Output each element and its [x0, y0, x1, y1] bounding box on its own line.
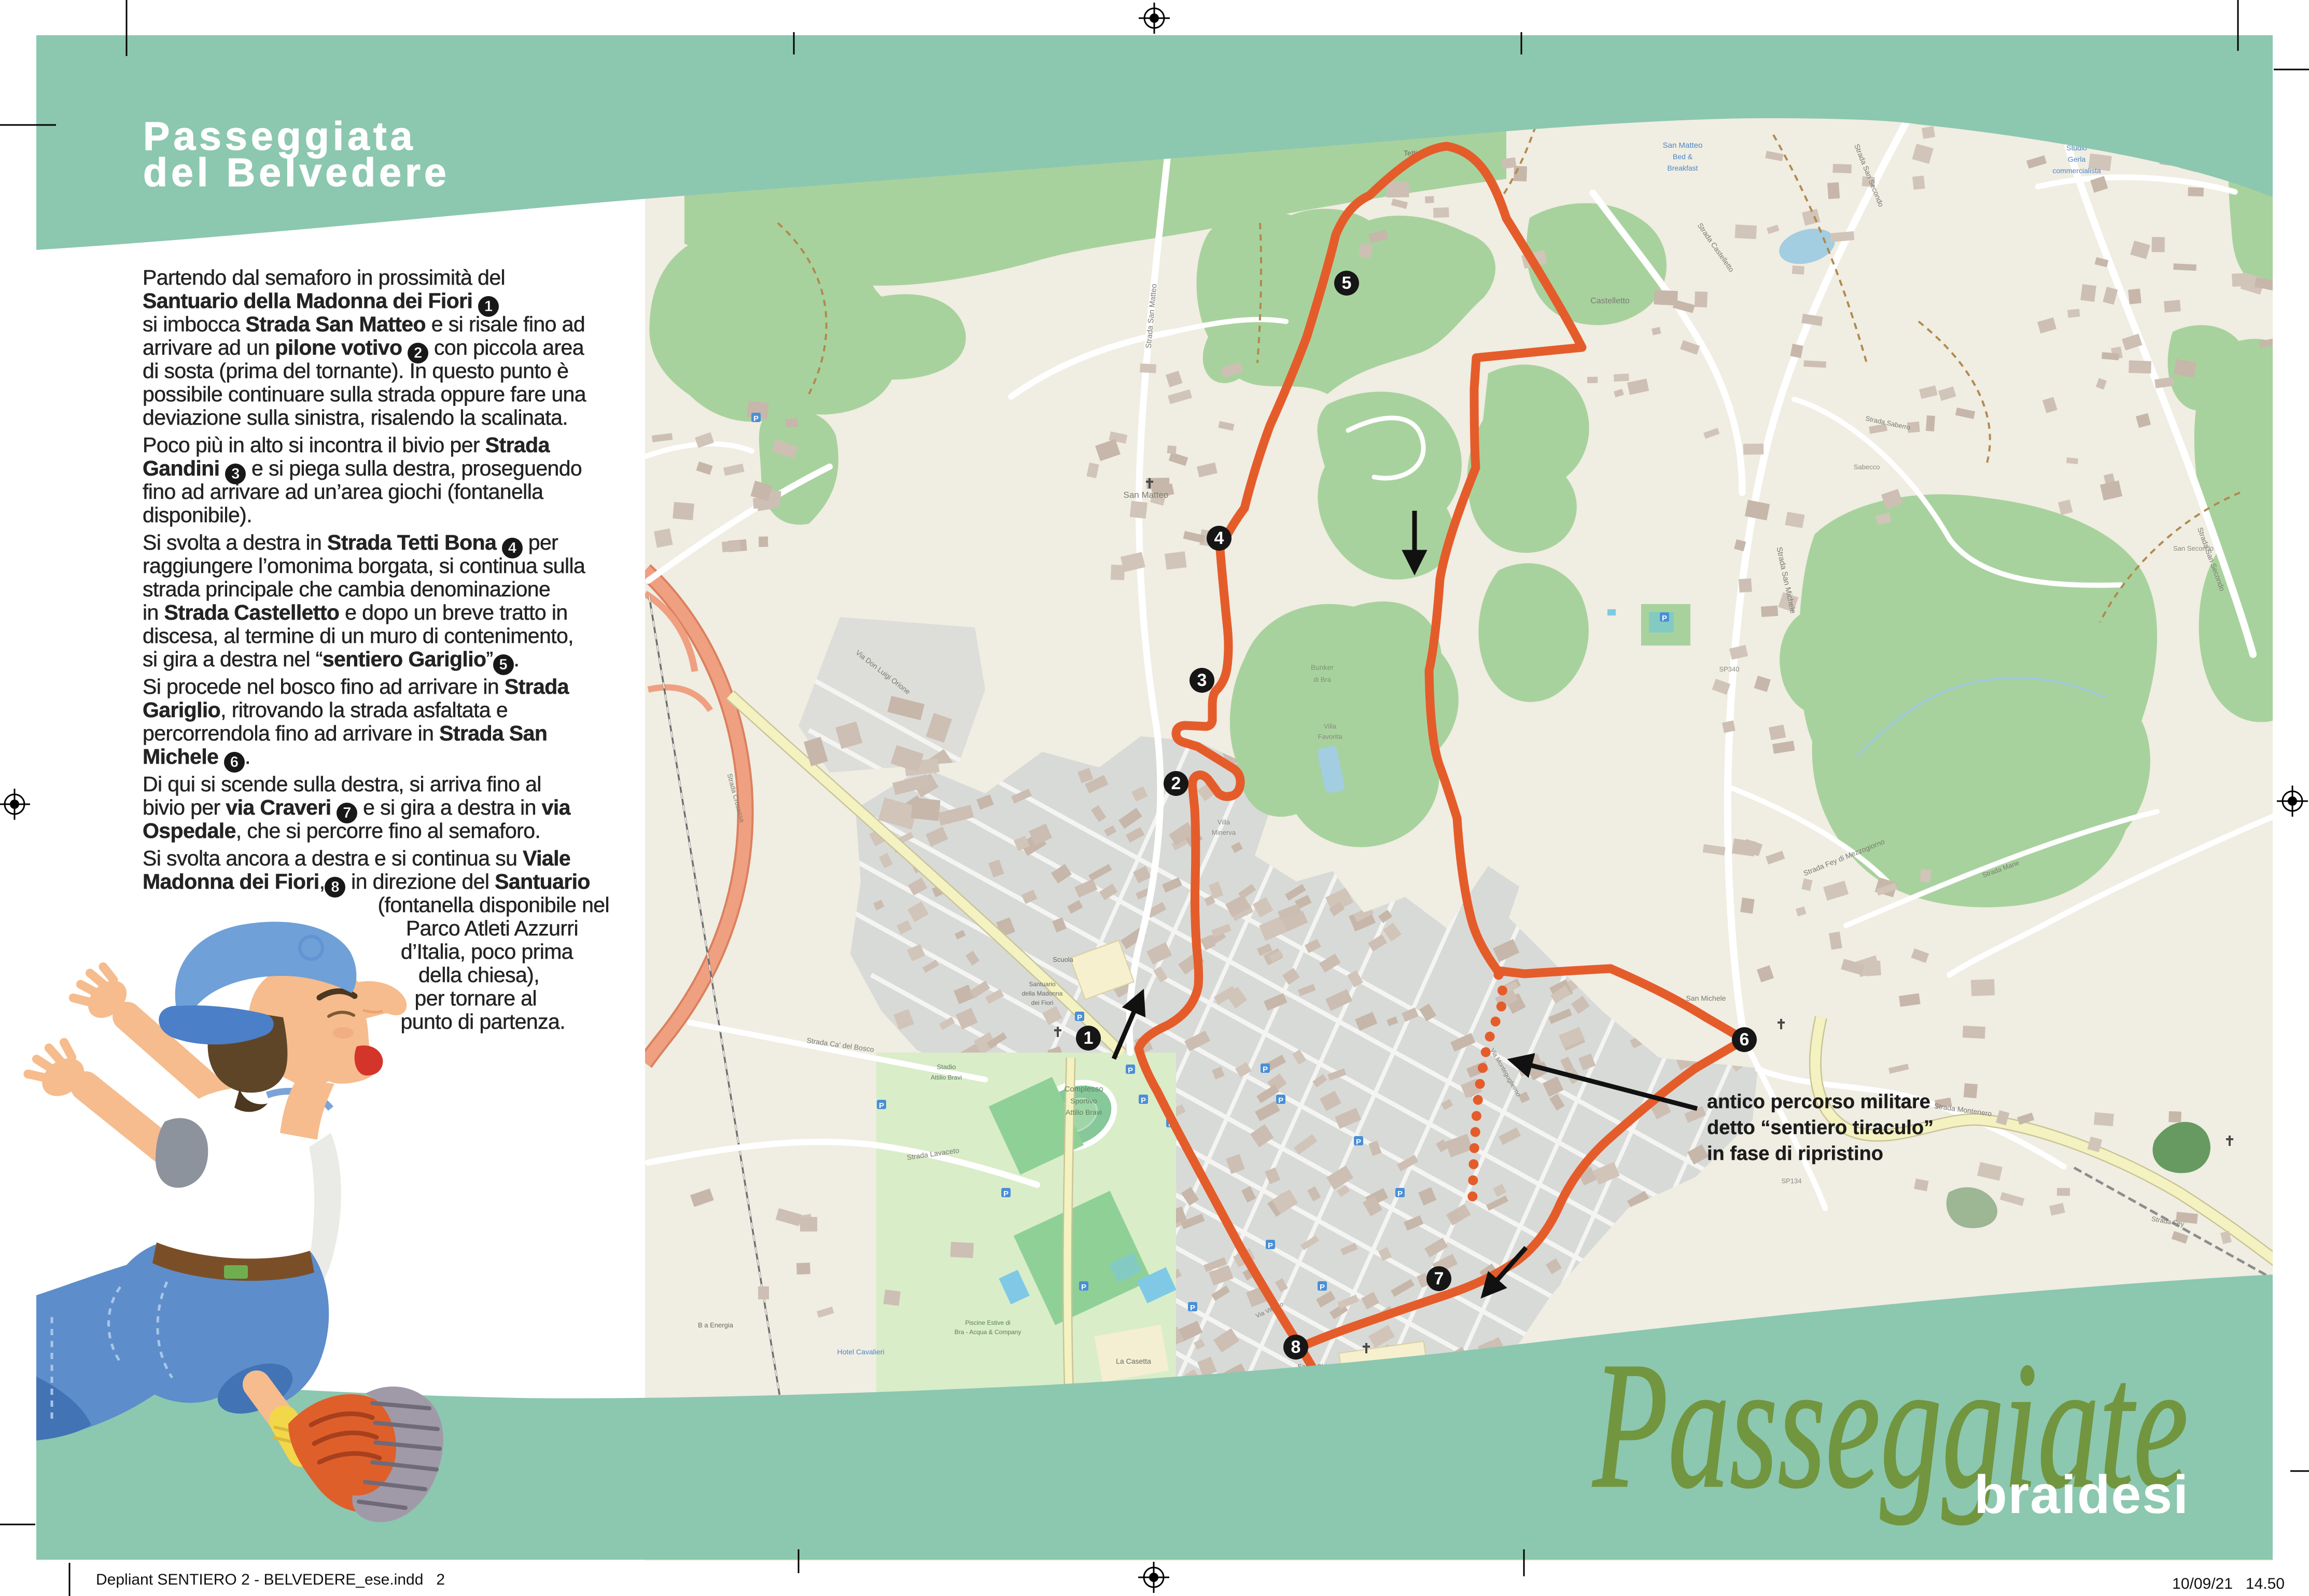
svg-text:P: P: [1263, 1065, 1268, 1074]
svg-text:2: 2: [1171, 774, 1181, 793]
svg-text:Villa: Villa: [1324, 722, 1337, 730]
svg-text:San Michele: San Michele: [1686, 994, 1726, 1002]
svg-text:braidesi: braidesi: [1974, 1465, 2189, 1525]
svg-text:Bra - Acqua & Company: Bra - Acqua & Company: [955, 1328, 1021, 1336]
svg-text:Castelletto: Castelletto: [1590, 297, 1630, 305]
svg-text:SP340: SP340: [1719, 665, 1739, 673]
svg-text:P: P: [1397, 1189, 1403, 1198]
svg-text:Bunker: Bunker: [1311, 663, 1334, 671]
svg-text:P: P: [1662, 614, 1667, 623]
svg-text:P: P: [1128, 1066, 1133, 1075]
svg-text:Attilio Bravi: Attilio Bravi: [1066, 1108, 1102, 1116]
svg-text:Sportivo: Sportivo: [1070, 1097, 1097, 1105]
svg-text:La Casetta: La Casetta: [1116, 1357, 1151, 1365]
svg-text:Sabecco: Sabecco: [1854, 463, 1880, 471]
svg-text:Favorita: Favorita: [1318, 733, 1343, 740]
svg-text:Piscine Estive di: Piscine Estive di: [965, 1319, 1010, 1326]
svg-text:San Matteo: San Matteo: [1663, 141, 1703, 150]
svg-text:B a Energia: B a Energia: [698, 1321, 734, 1329]
svg-text:Attilio Bravi: Attilio Bravi: [931, 1074, 962, 1081]
svg-text:P: P: [1003, 1189, 1009, 1198]
svg-text:della Madonna: della Madonna: [1022, 990, 1063, 997]
svg-text:Complesso: Complesso: [1064, 1085, 1103, 1094]
svg-text:SP134: SP134: [1781, 1177, 1801, 1185]
svg-text:Gerla: Gerla: [2068, 155, 2086, 163]
svg-text:Stadio: Stadio: [937, 1063, 956, 1071]
svg-text:Bed &: Bed &: [1673, 152, 1693, 161]
svg-text:San Secondo: San Secondo: [2173, 544, 2214, 552]
svg-text:P: P: [879, 1101, 884, 1110]
svg-text:P: P: [1081, 1283, 1086, 1292]
svg-text:P: P: [1190, 1304, 1195, 1312]
svg-text:Hotel Cavalieri: Hotel Cavalieri: [837, 1348, 884, 1356]
svg-text:6: 6: [1740, 1030, 1750, 1049]
svg-text:P: P: [1278, 1096, 1283, 1105]
svg-text:Scuola: Scuola: [1053, 956, 1074, 963]
svg-text:8: 8: [1291, 1337, 1301, 1357]
svg-text:P: P: [1320, 1283, 1325, 1292]
svg-text:Villa: Villa: [1218, 818, 1230, 826]
svg-text:di Bra: di Bra: [1313, 676, 1332, 683]
svg-text:P: P: [1077, 1013, 1082, 1022]
svg-text:dei Fiori: dei Fiori: [1031, 999, 1054, 1006]
svg-text:3: 3: [1197, 670, 1207, 690]
svg-text:Santuario: Santuario: [1029, 981, 1056, 988]
svg-text:P: P: [753, 414, 759, 423]
svg-text:P: P: [1356, 1138, 1361, 1146]
svg-text:P: P: [1141, 1096, 1146, 1105]
svg-text:5: 5: [1342, 273, 1352, 293]
svg-text:Breakfast: Breakfast: [1667, 164, 1698, 172]
svg-text:7: 7: [1434, 1269, 1444, 1289]
svg-text:1: 1: [1084, 1028, 1094, 1048]
svg-text:Minerva: Minerva: [1212, 829, 1236, 836]
svg-text:commercialista: commercialista: [2052, 166, 2101, 175]
svg-text:4: 4: [1214, 528, 1224, 548]
svg-text:San Matteo: San Matteo: [1124, 490, 1169, 500]
svg-text:P: P: [1268, 1241, 1273, 1250]
